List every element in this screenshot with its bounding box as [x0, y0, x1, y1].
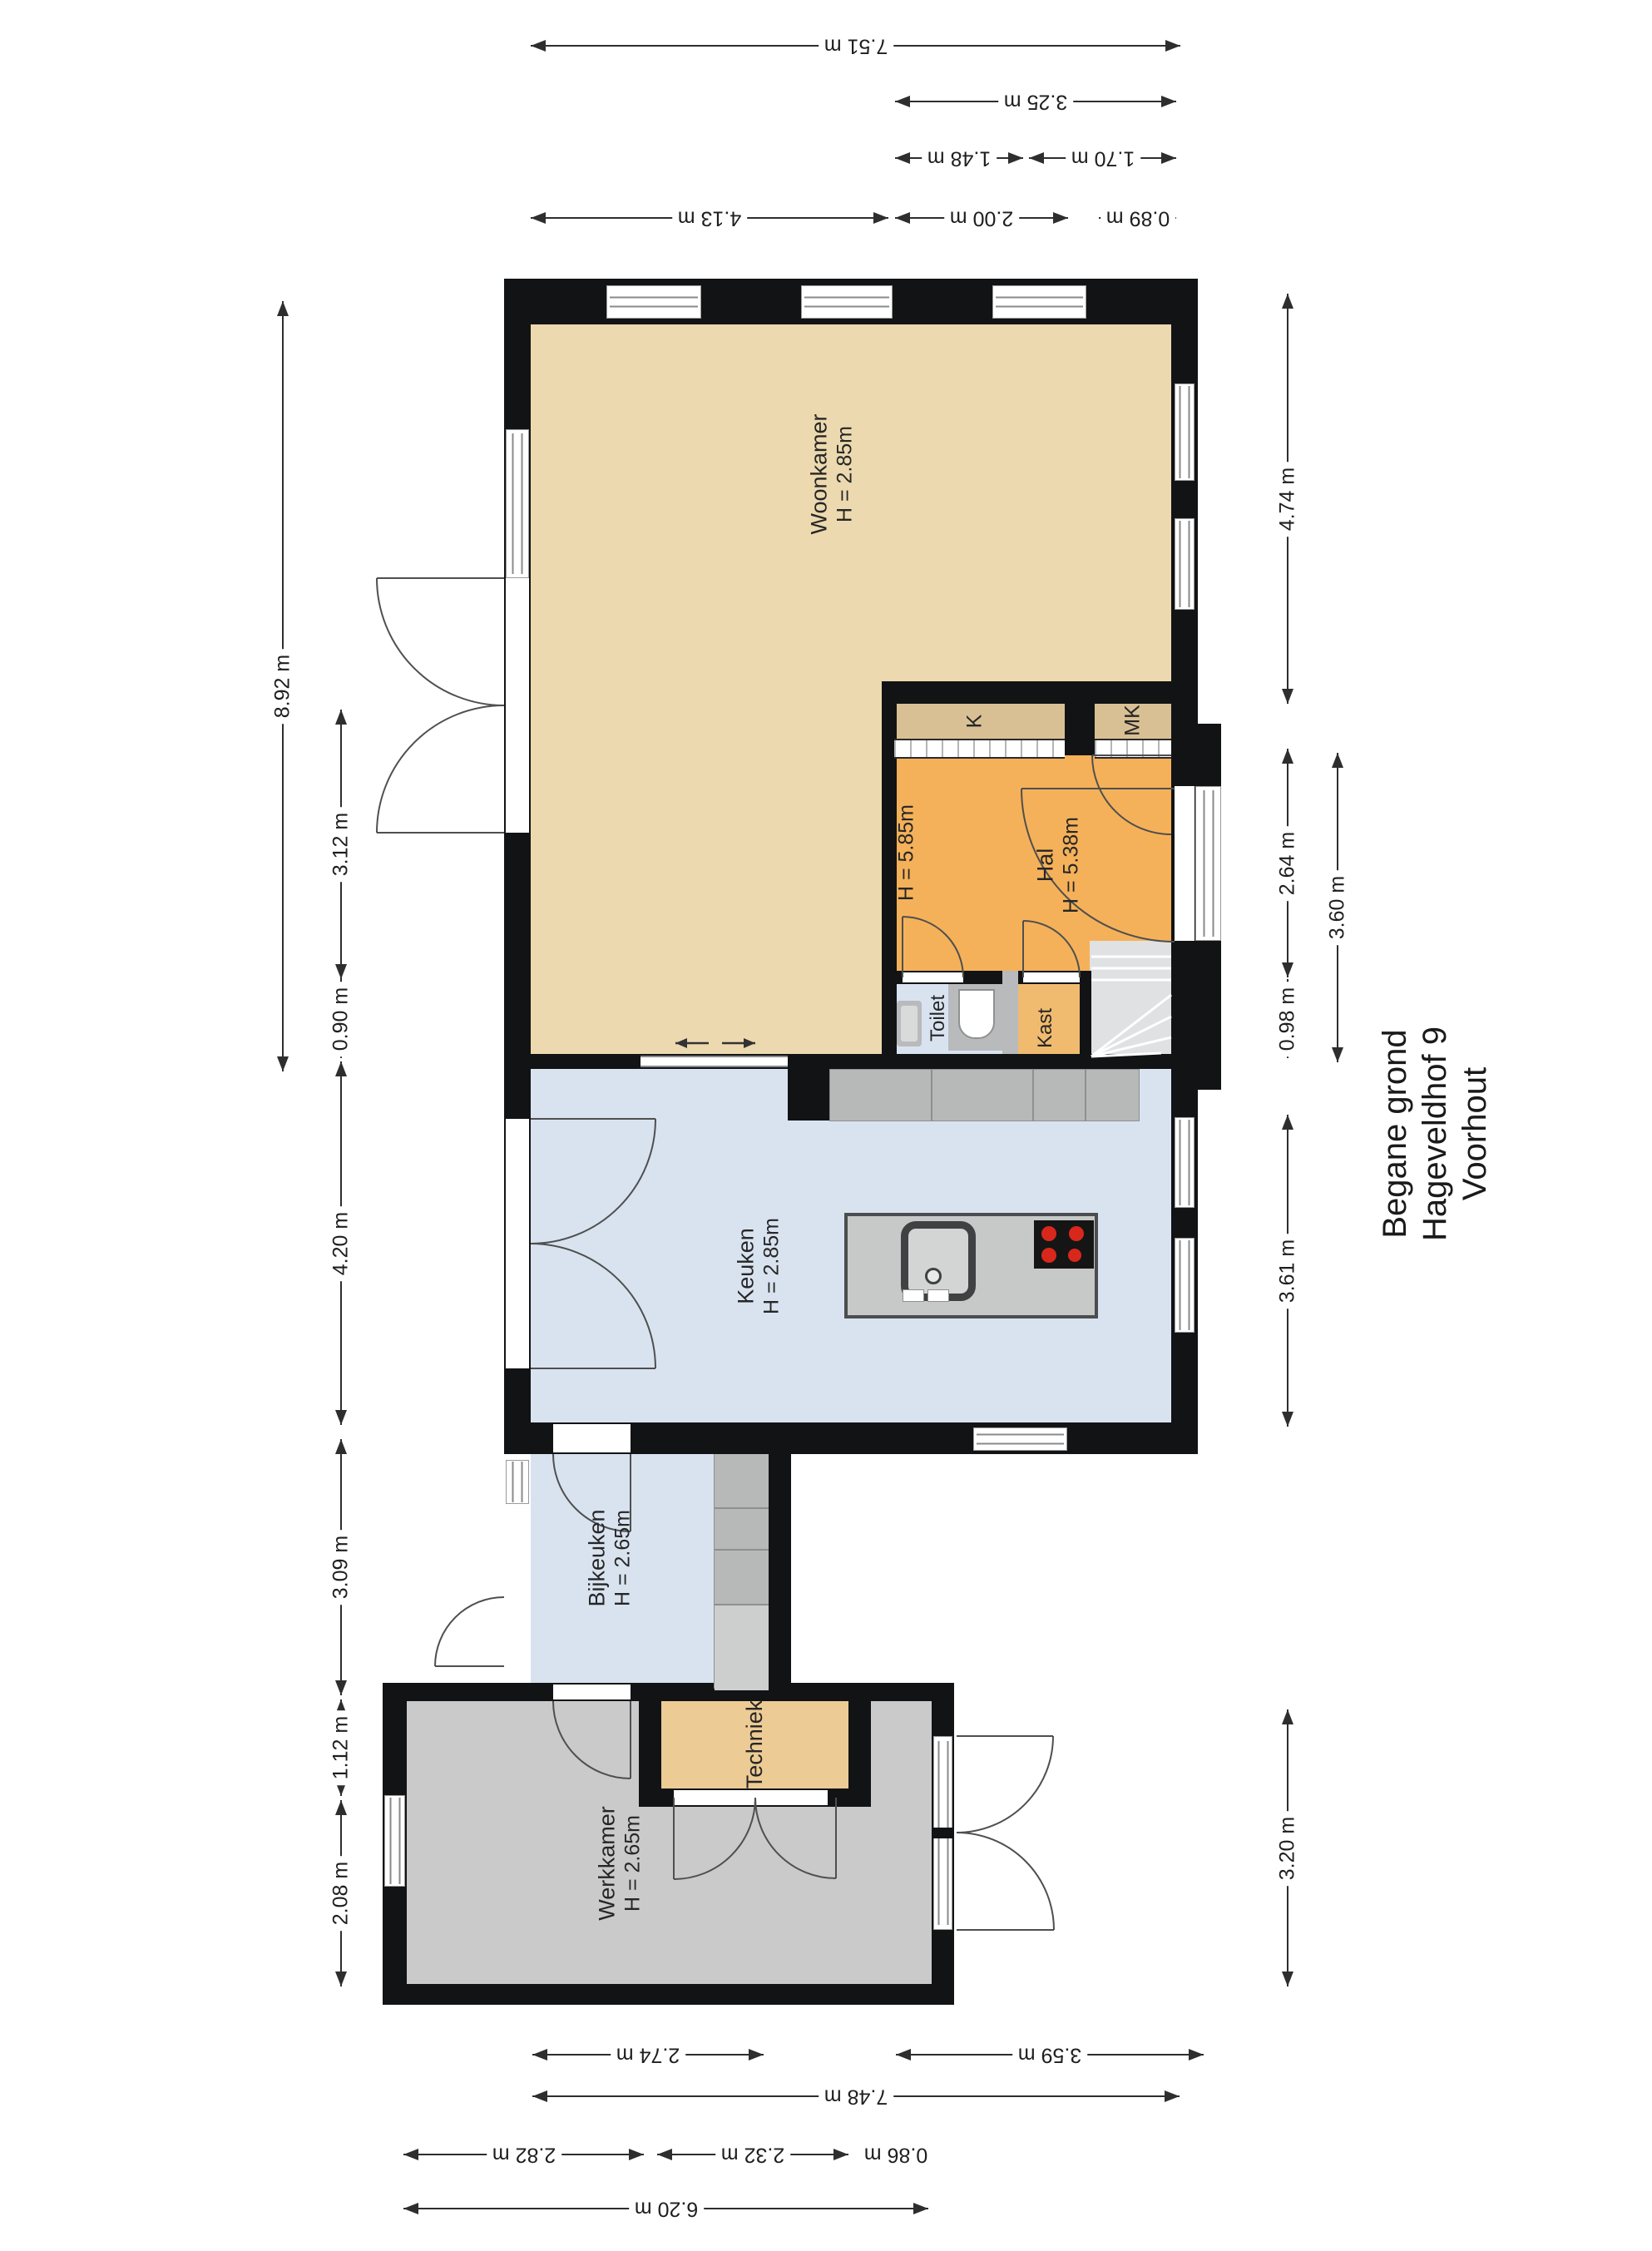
stairs-treads — [1091, 957, 1171, 1056]
dimension-2.82m: 2.82 m — [403, 2143, 644, 2166]
arrowhead — [531, 40, 546, 52]
arrowhead — [1282, 749, 1293, 764]
arrowhead — [895, 96, 910, 107]
arrowhead — [335, 1061, 347, 1076]
arrowhead — [532, 2049, 547, 2061]
arrowhead — [1029, 152, 1044, 164]
arrowhead — [1332, 1047, 1343, 1062]
label-werkkamer: Werkkamer H = 2.65m — [594, 1806, 645, 1921]
arrowhead — [1282, 1709, 1293, 1724]
arrowhead — [1165, 2090, 1180, 2102]
arrowhead — [277, 301, 289, 316]
arrowhead — [749, 2049, 764, 2061]
arrowhead — [335, 1800, 347, 1815]
door-arc — [531, 1119, 655, 1244]
arrowhead — [873, 212, 888, 224]
door-arc — [755, 1798, 836, 1878]
dimension-3.09m: 3.09 m — [329, 1439, 353, 1695]
dimension-7.51m: 7.51 m — [531, 34, 1180, 57]
door-arc — [957, 1736, 1053, 1833]
dimension-label: 3.61 m — [1275, 1233, 1301, 1308]
dimension-label: 2.82 m — [486, 2142, 561, 2168]
arrowhead — [532, 2090, 547, 2102]
door-arc — [1092, 755, 1171, 834]
arrowhead — [403, 2203, 418, 2214]
dimension-label: 0.86 m — [858, 2142, 933, 2168]
room-name: Keuken — [733, 1218, 759, 1314]
arrowhead — [1282, 689, 1293, 704]
arrowhead — [895, 152, 910, 164]
arrowhead — [1282, 1412, 1293, 1427]
dimension-label: 1.12 m — [329, 1710, 354, 1785]
room-name: Toilet — [927, 995, 950, 1041]
door-arc — [957, 1833, 1054, 1930]
dimension-0.86m: 0.86 m — [861, 2143, 931, 2166]
dimension-label: 3.09 m — [329, 1530, 354, 1605]
dimension-0.98m: 0.98 m — [1276, 979, 1299, 1058]
floorplan-canvas: Woonkamer H = 2.85m Hal H = 5.38m H = 5.… — [0, 0, 1652, 2251]
arrowhead — [335, 1971, 347, 1986]
label-bijkeuken: Bijkeuken H = 2.65m — [584, 1509, 635, 1606]
arrowhead — [1282, 1971, 1293, 1986]
arrowhead — [1282, 962, 1293, 977]
dimension-4.74m: 4.74 m — [1276, 294, 1299, 704]
door-arc — [553, 1701, 631, 1779]
dimension-label: 2.08 m — [329, 1856, 354, 1931]
room-height: H = 2.85m — [759, 1218, 784, 1314]
title-line-2: Hageveldhof 9 — [1415, 1027, 1455, 1241]
room-name: MK — [1120, 705, 1145, 736]
dimension-1.70m: 1.70 m — [1029, 146, 1176, 170]
dimension-label: 4.13 m — [672, 205, 747, 231]
door-arc — [674, 1798, 755, 1879]
arrowhead — [531, 212, 546, 224]
room-name: Woonkamer — [806, 413, 833, 534]
arrowhead — [1282, 294, 1293, 309]
dimension-label: 3.12 m — [329, 807, 354, 882]
dimension-2.08m: 2.08 m — [329, 1800, 353, 1986]
arrowhead — [335, 1680, 347, 1695]
dimension-2.00m: 2.00 m — [895, 206, 1068, 230]
arrowhead — [403, 2149, 418, 2160]
dimension-4.20m: 4.20 m — [329, 1061, 353, 1425]
dimension-label: 0.98 m — [1275, 981, 1301, 1056]
dimension-label: 3.59 m — [1012, 2042, 1087, 2068]
dimension-label: 2.00 m — [944, 205, 1019, 231]
dimension-label: 4.74 m — [1275, 461, 1301, 536]
label-woonkamer: Woonkamer H = 2.85m — [806, 413, 857, 534]
arrowhead — [335, 1439, 347, 1454]
arrowhead — [1332, 753, 1343, 768]
label-techniek: Techniek — [742, 1700, 769, 1789]
room-height: H = 5.38m — [1059, 817, 1084, 913]
room-name: Hal — [1032, 817, 1059, 913]
room-height: H = 5.85m — [894, 804, 919, 901]
label-mk: MK — [1120, 705, 1145, 736]
dimension-label: 7.48 m — [819, 2084, 893, 2110]
arrowhead — [629, 2149, 644, 2160]
dimension-4.13m: 4.13 m — [531, 206, 888, 230]
arrowhead — [335, 964, 347, 979]
arrowhead — [895, 212, 910, 224]
arrowhead — [1165, 40, 1180, 52]
dimension-label: 4.20 m — [329, 1205, 354, 1280]
arrowhead — [277, 1056, 289, 1071]
arrowhead — [1189, 2049, 1204, 2061]
door-arc — [377, 578, 504, 705]
arrowhead — [335, 1410, 347, 1425]
dimension-8.92m: 8.92 m — [271, 301, 294, 1071]
door-arc — [531, 1244, 655, 1368]
plan-title: Begane grond Hageveldhof 9 Voorhout — [1375, 1027, 1495, 1241]
door-arc — [1023, 921, 1080, 977]
title-line-3: Voorhout — [1455, 1027, 1495, 1241]
door-arc — [435, 1597, 504, 1666]
room-name: Kast — [1034, 1008, 1057, 1048]
dimension-0.89m: 0.89 m — [1099, 206, 1176, 230]
arrowhead — [1282, 1115, 1293, 1130]
arrowhead — [896, 2049, 911, 2061]
arrowhead — [1161, 96, 1176, 107]
label-vide-height: H = 5.85m — [894, 804, 919, 901]
dimension-label: 0.89 m — [1100, 205, 1175, 231]
dimension-6.20m: 6.20 m — [403, 2197, 928, 2220]
arrowhead — [335, 710, 347, 725]
dimension-1.48m: 1.48 m — [895, 146, 1023, 170]
room-name: Techniek — [742, 1700, 769, 1789]
dimension-label: 1.70 m — [1065, 146, 1140, 171]
dimension-2.74m: 2.74 m — [532, 2043, 764, 2066]
room-height: H = 2.65m — [621, 1806, 645, 1921]
label-toilet: Toilet — [927, 995, 950, 1041]
dimension-0.90m: 0.90 m — [329, 979, 353, 1058]
dimension-label: 8.92 m — [270, 649, 296, 724]
door-arc — [377, 705, 504, 833]
arrowhead — [657, 2149, 672, 2160]
door-arc — [903, 917, 963, 977]
label-keuken: Keuken H = 2.85m — [733, 1218, 784, 1314]
label-hal: Hal H = 5.38m — [1032, 817, 1083, 913]
arrowhead — [833, 2149, 848, 2160]
room-name: Bijkeuken — [584, 1509, 611, 1606]
dimension-label: 0.90 m — [329, 981, 354, 1056]
dimension-3.61m: 3.61 m — [1276, 1115, 1299, 1427]
arrowhead — [1161, 152, 1176, 164]
dimension-1.12m: 1.12 m — [329, 1699, 353, 1796]
arrowhead — [913, 2203, 928, 2214]
dimension-label: 6.20 m — [628, 2196, 703, 2222]
room-height: H = 2.65m — [611, 1509, 636, 1606]
dimension-2.64m: 2.64 m — [1276, 749, 1299, 977]
dimension-label: 3.20 m — [1275, 1810, 1301, 1885]
dimension-label: 2.32 m — [715, 2142, 790, 2168]
room-name: Werkkamer — [594, 1806, 621, 1921]
title-line-1: Begane grond — [1375, 1027, 1415, 1241]
dimension-label: 3.60 m — [1325, 870, 1351, 945]
dimension-3.12m: 3.12 m — [329, 710, 353, 979]
dimension-3.25m: 3.25 m — [895, 90, 1176, 113]
slide-arrows — [675, 1038, 755, 1048]
dimension-label: 7.51 m — [818, 33, 893, 59]
label-k: K — [962, 715, 987, 729]
dimension-7.48m: 7.48 m — [532, 2085, 1180, 2108]
room-name: K — [962, 715, 987, 729]
dimension-label: 2.74 m — [611, 2042, 685, 2068]
dimension-2.32m: 2.32 m — [657, 2143, 848, 2166]
dimension-3.20m: 3.20 m — [1276, 1709, 1299, 1986]
label-kast: Kast — [1034, 1008, 1057, 1048]
dimension-3.60m: 3.60 m — [1326, 753, 1349, 1062]
dimension-label: 3.25 m — [998, 89, 1073, 115]
dimension-3.59m: 3.59 m — [896, 2043, 1204, 2066]
dimension-label: 1.48 m — [922, 146, 997, 171]
arrowhead — [1008, 152, 1023, 164]
room-height: H = 2.85m — [833, 413, 858, 534]
arrowhead — [1053, 212, 1068, 224]
dimension-label: 2.64 m — [1275, 825, 1301, 900]
